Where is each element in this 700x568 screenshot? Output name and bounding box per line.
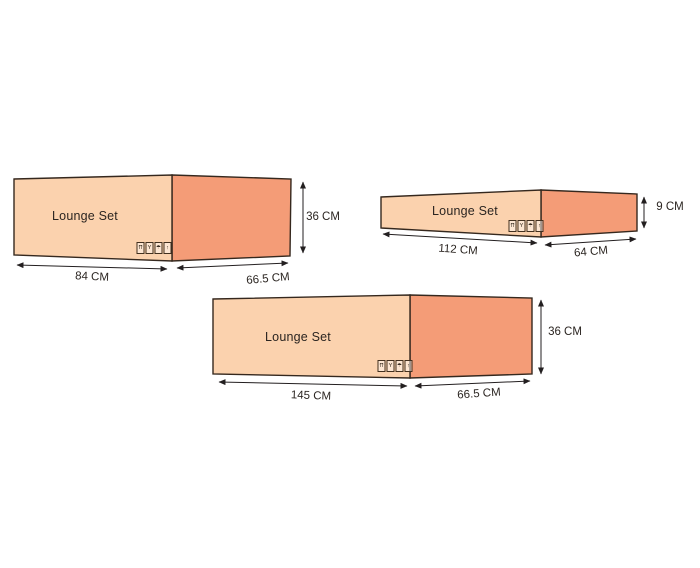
handling-icons: ⇈ Y ☂ ↑ [378, 360, 413, 372]
package-box-flat: Lounge Set ⇈ Y ☂ ↑ 112 CM 64 CM 9 CM [370, 180, 700, 270]
fragile-icon: Y [387, 360, 395, 372]
box-drawing [200, 285, 600, 411]
depth-dimension-arrow [545, 239, 636, 245]
box-label: Lounge Set [265, 330, 331, 344]
box-label: Lounge Set [52, 209, 118, 223]
keep-dry-icon: ☂ [396, 360, 404, 372]
keep-dry-icon: ☂ [155, 242, 163, 254]
this-way-up-icon: ⇈ [137, 242, 145, 254]
packaging-dimensions-diagram: Lounge Set ⇈ Y ☂ ↑ 84 CM 66.5 CM 36 CM L… [0, 0, 700, 568]
width-dimension-arrow [219, 382, 407, 386]
up-arrow-icon: ↑ [405, 360, 413, 372]
this-way-up-icon: ⇈ [378, 360, 386, 372]
keep-dry-icon: ☂ [527, 220, 535, 232]
handling-icons: ⇈ Y ☂ ↑ [509, 220, 544, 232]
package-box-large: Lounge Set ⇈ Y ☂ ↑ 145 CM 66.5 CM 36 CM [200, 285, 600, 411]
box-side-face [541, 190, 637, 237]
this-way-up-icon: ⇈ [509, 220, 517, 232]
height-dimension-label: 36 CM [306, 211, 340, 223]
box-label: Lounge Set [432, 204, 498, 218]
height-dimension-label: 9 CM [656, 201, 683, 213]
package-box-small: Lounge Set ⇈ Y ☂ ↑ 84 CM 66.5 CM 36 CM [0, 165, 345, 297]
box-side-face [410, 295, 532, 378]
up-arrow-icon: ↑ [164, 242, 172, 254]
height-dimension-label: 36 CM [548, 326, 582, 338]
fragile-icon: Y [518, 220, 526, 232]
depth-dimension-arrow [177, 263, 288, 268]
depth-dimension-arrow [415, 381, 530, 386]
fragile-icon: Y [146, 242, 154, 254]
up-arrow-icon: ↑ [536, 220, 544, 232]
box-drawing [0, 165, 345, 297]
width-dimension-label: 145 CM [291, 389, 332, 402]
box-side-face [172, 175, 291, 261]
width-dimension-arrow [17, 265, 167, 269]
handling-icons: ⇈ Y ☂ ↑ [137, 242, 172, 254]
width-dimension-label: 84 CM [75, 270, 109, 283]
